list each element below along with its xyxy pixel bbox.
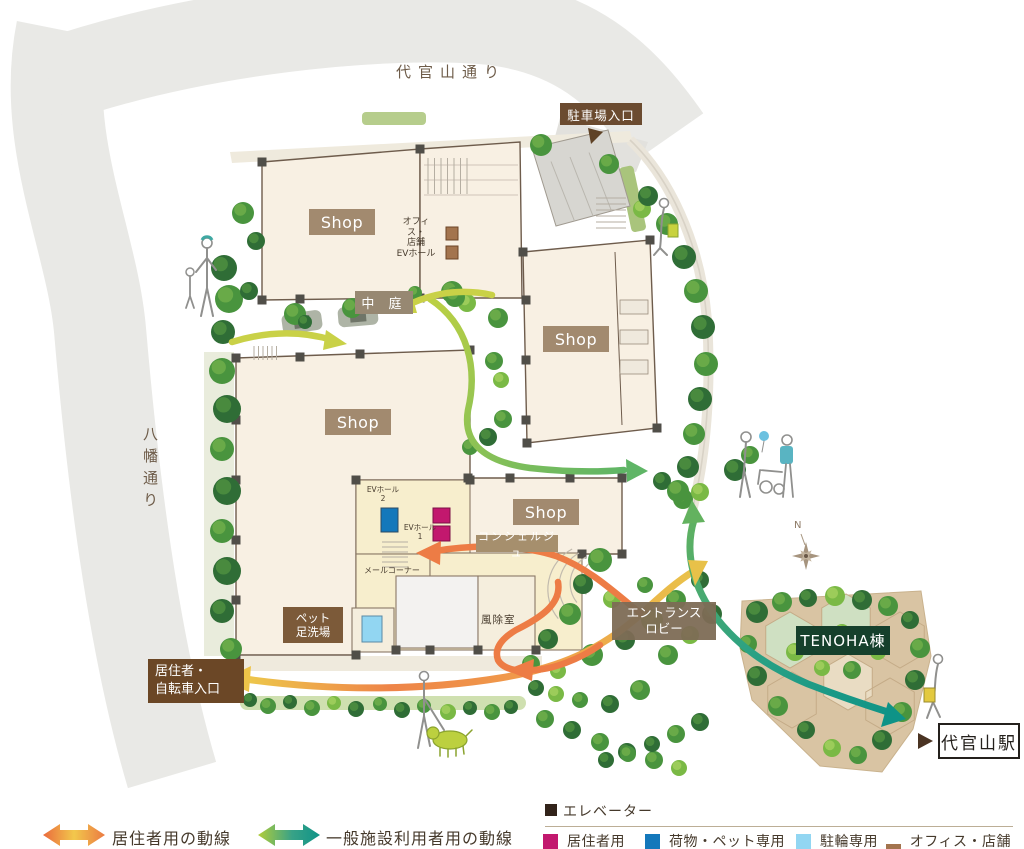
tree — [488, 308, 508, 328]
tree — [494, 410, 512, 428]
tree — [493, 372, 509, 388]
tree — [768, 696, 788, 716]
tree — [878, 596, 898, 616]
courtyard-badge: 中 庭 — [355, 291, 413, 314]
tree — [852, 590, 872, 610]
office-shop-ev-label: オフィス・店舗用 — [910, 831, 1024, 849]
site-plan-graphics — [0, 0, 1024, 849]
tree — [671, 760, 687, 776]
tree — [644, 736, 660, 752]
ev1-line2: 1 — [398, 533, 442, 542]
elevator-title-text: エレベーター — [563, 801, 653, 821]
legend-item-resident-ev: 居住者用 — [543, 831, 625, 849]
ev-office-2 — [446, 246, 458, 259]
pet-foot-wash-badge: ペット 足洗場 — [283, 607, 343, 643]
tree — [688, 387, 712, 411]
tree — [799, 589, 817, 607]
tree — [240, 282, 258, 300]
tree — [843, 661, 861, 679]
station-pointer-icon — [918, 733, 933, 749]
tree — [601, 695, 619, 713]
tree — [213, 557, 241, 585]
tree — [684, 279, 708, 303]
resident-ev-color-icon — [543, 834, 558, 849]
lobby-line1: エントランス — [627, 605, 702, 621]
tree — [572, 692, 588, 708]
office-shop-ev-color-icon — [886, 844, 901, 849]
bicycle-ev-color-icon — [796, 834, 811, 849]
legend-general-flow-label: 一般施設利用者用の動線 — [326, 825, 513, 849]
resident-line1: 居住者・ — [155, 663, 207, 681]
tree — [823, 739, 841, 757]
tree — [327, 696, 341, 710]
tenoha-building-badge: TENOHA棟 — [796, 626, 890, 655]
tree — [210, 437, 234, 461]
legend-resident-flow-arrow — [43, 824, 105, 846]
arrowhead — [323, 330, 347, 350]
legend-item-cargo-pet-ev: 荷物・ペット専用 — [645, 831, 785, 849]
legend-item-bicycle-ev: 駐輪専用 — [796, 831, 878, 849]
tree — [463, 701, 477, 715]
tree — [283, 695, 297, 709]
tree — [872, 730, 892, 750]
ev2-line2: 2 — [362, 495, 404, 504]
office-ev-line3: EVホール — [394, 249, 438, 260]
tree — [849, 746, 867, 764]
legend-resident-flow-label: 居住者用の動線 — [112, 825, 231, 849]
tree — [814, 660, 830, 676]
pet-wash-line2: 足洗場 — [296, 625, 331, 639]
ev-bicycle — [362, 616, 382, 642]
elevator-title-square-icon — [545, 804, 557, 816]
tree — [213, 477, 241, 505]
legend-divider — [545, 826, 1013, 827]
windbreak-room-label: 風除室 — [481, 612, 516, 627]
general-flow-street — [232, 333, 332, 342]
tree — [620, 746, 636, 762]
tree — [588, 548, 612, 572]
tree — [667, 725, 685, 743]
tree — [563, 721, 581, 739]
tree — [637, 577, 653, 593]
tree — [440, 704, 456, 720]
ev-hall-2-label: EVホール 2 — [362, 486, 404, 503]
shop-label-west: Shop — [325, 409, 391, 435]
tree — [901, 611, 919, 629]
tree — [348, 701, 364, 717]
tree — [677, 456, 699, 478]
concierge-badge: コンシェルジュ — [476, 535, 558, 552]
tree — [530, 134, 552, 156]
shop-label-center: Shop — [513, 499, 579, 525]
tree — [232, 202, 254, 224]
pet-wash-line1: ペット — [296, 611, 331, 625]
resident-bicycle-entrance-badge: 居住者・ 自転車入口 — [148, 659, 244, 703]
arrowhead — [626, 459, 648, 482]
tree — [215, 285, 243, 313]
entrance-lobby-badge: エントランス ロビー — [612, 602, 716, 640]
lobby-line2: ロビー — [645, 621, 683, 637]
mail-corner-label: メールコーナー — [364, 565, 420, 576]
tree — [485, 352, 503, 370]
ev-hall-1-label: EVホール 1 — [398, 524, 442, 541]
tree — [394, 702, 410, 718]
site-plan: 代官山通り 八幡通り 駐車場入口 Shop Shop Shop Shop 中 庭… — [0, 0, 1024, 849]
compass-north-label: N — [794, 520, 801, 531]
tree — [691, 483, 709, 501]
cargo-pet-ev-color-icon — [645, 834, 660, 849]
street-label-yawata-dori: 八幡通り — [140, 426, 161, 514]
tree — [658, 645, 678, 665]
tree — [528, 680, 544, 696]
tree — [691, 713, 709, 731]
tree — [484, 704, 500, 720]
tree — [905, 670, 925, 690]
office-ev-hall-label: オフィス・ 店舗 EVホール — [394, 217, 438, 259]
tree — [210, 599, 234, 623]
tree — [504, 700, 518, 714]
tree — [746, 601, 768, 623]
resident-line2: 自転車入口 — [155, 681, 220, 699]
parking-entrance-badge: 駐車場入口 — [560, 103, 642, 125]
daikanyama-station-box: 代官山駅 — [938, 723, 1020, 759]
bicycle-ev-label: 駐輪専用 — [820, 831, 878, 849]
tree — [260, 698, 276, 714]
tree — [797, 721, 815, 739]
shop-label-northwest: Shop — [309, 209, 375, 235]
ev-office-1 — [446, 227, 458, 240]
tree — [683, 423, 705, 445]
ev-cargo-pet — [381, 508, 398, 532]
legend-general-flow-arrow — [258, 824, 320, 846]
street-label-daikanyama-dori: 代官山通り — [396, 61, 506, 82]
tree — [209, 358, 235, 384]
tree — [630, 680, 650, 700]
tree — [373, 697, 387, 711]
tree — [536, 710, 554, 728]
tree — [243, 693, 257, 707]
tree — [591, 733, 609, 751]
legend-item-office-shop-ev: オフィス・店舗用 — [886, 831, 1024, 849]
tree — [210, 519, 234, 543]
tree — [247, 232, 265, 250]
tree — [645, 751, 663, 769]
shop-label-east: Shop — [543, 326, 609, 352]
tree — [747, 666, 767, 686]
tree — [691, 315, 715, 339]
tree — [598, 752, 614, 768]
tree — [559, 603, 581, 625]
tree — [910, 638, 930, 658]
resident-ev-label: 居住者用 — [567, 831, 625, 849]
tree — [672, 245, 696, 269]
tree — [298, 315, 312, 329]
tree — [825, 586, 845, 606]
ev-resident-1 — [433, 508, 450, 523]
tree — [479, 428, 497, 446]
tree — [548, 686, 564, 702]
tree — [667, 480, 689, 502]
legend-elevator-title: エレベーター — [545, 801, 653, 821]
tree — [694, 352, 718, 376]
tree — [599, 154, 619, 174]
office-ev-line2: 店舗 — [394, 238, 438, 249]
tree — [213, 395, 241, 423]
office-ev-line1: オフィス・ — [394, 217, 438, 238]
tree — [772, 592, 792, 612]
compass — [792, 534, 820, 570]
tree — [538, 629, 558, 649]
tree — [304, 700, 320, 716]
cargo-pet-ev-label: 荷物・ペット専用 — [669, 831, 785, 849]
tree — [220, 638, 242, 660]
tree — [638, 186, 658, 206]
